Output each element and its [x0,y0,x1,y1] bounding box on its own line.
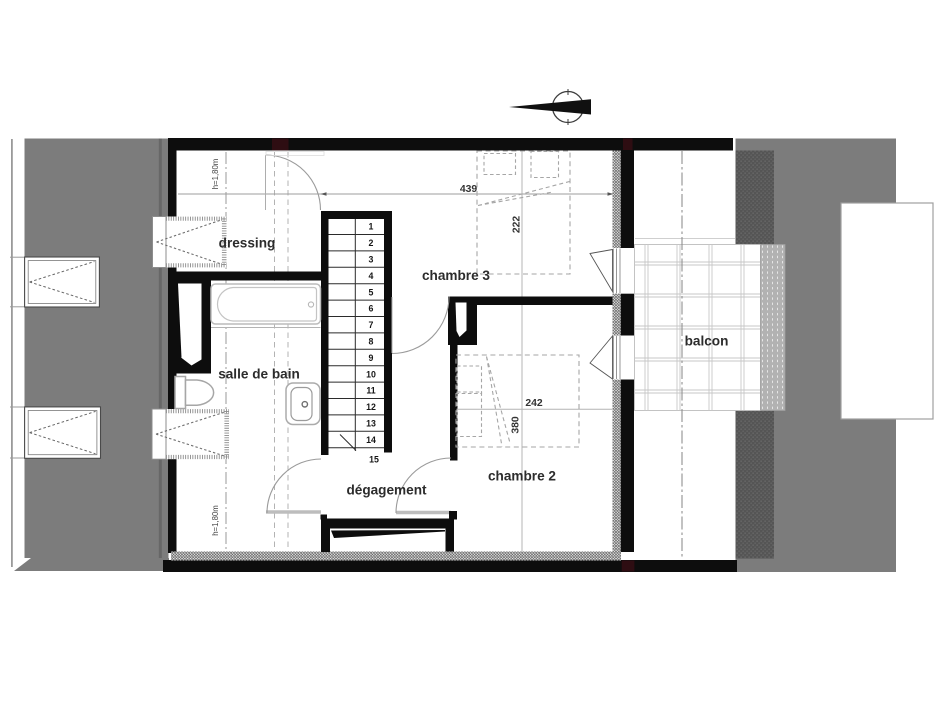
svg-text:salle de bain: salle de bain [218,367,300,382]
svg-text:15: 15 [369,455,379,465]
svg-text:1: 1 [369,222,374,232]
svg-text:7: 7 [369,320,374,330]
svg-text:13: 13 [366,419,376,429]
svg-text:dressing: dressing [219,236,276,251]
svg-text:dégagement: dégagement [346,483,427,498]
svg-text:380: 380 [511,416,522,434]
svg-text:3: 3 [369,255,374,265]
svg-text:2: 2 [369,238,374,248]
svg-text:h=1,80m: h=1,80m [211,505,220,536]
svg-text:5: 5 [369,287,374,297]
svg-text:14: 14 [366,435,376,445]
svg-text:222: 222 [512,216,523,234]
svg-text:chambre 2: chambre 2 [488,469,556,484]
svg-text:9: 9 [369,353,374,363]
svg-text:439: 439 [460,184,478,195]
svg-text:242: 242 [525,398,543,409]
svg-text:balcon: balcon [685,334,729,349]
svg-text:8: 8 [369,337,374,347]
svg-text:11: 11 [366,386,375,396]
svg-text:4: 4 [369,271,374,281]
svg-text:10: 10 [366,369,376,379]
svg-text:12: 12 [366,402,376,412]
svg-text:h=1,80m: h=1,80m [211,159,220,190]
svg-text:chambre 3: chambre 3 [422,268,490,283]
svg-text:6: 6 [369,304,374,314]
